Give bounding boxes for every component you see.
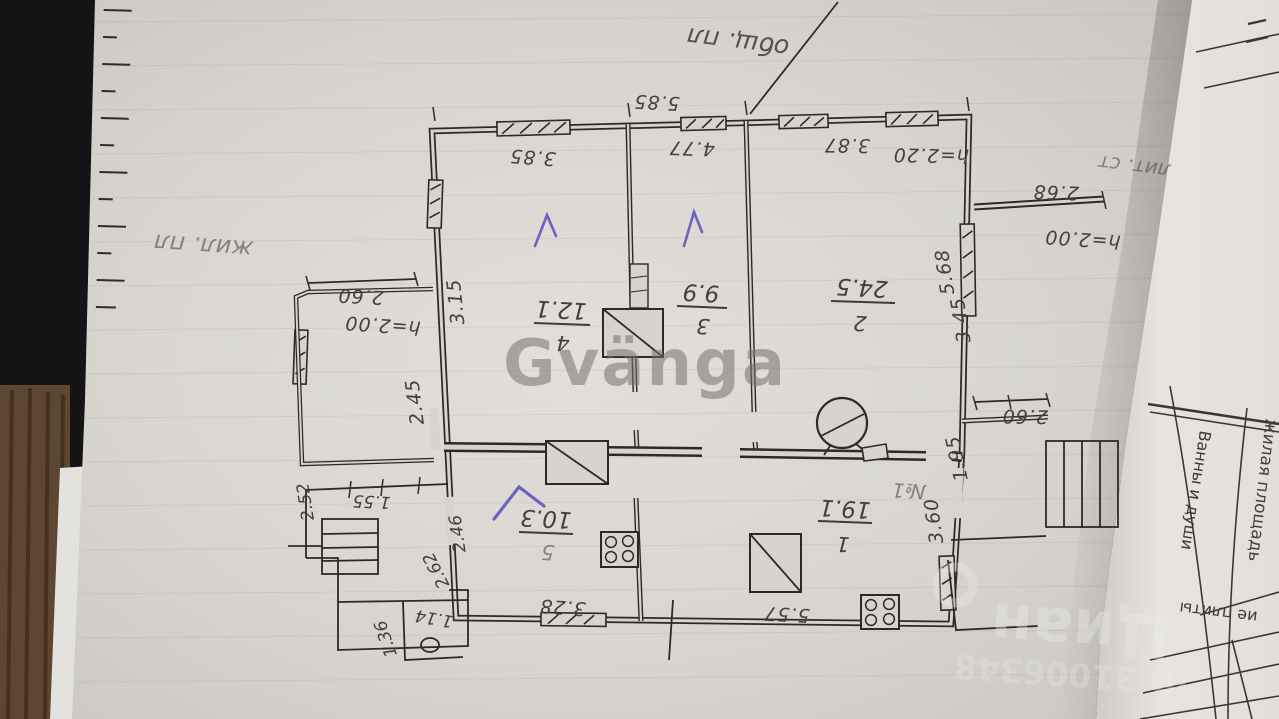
room-number: 5: [541, 540, 556, 565]
room-area: 24.5: [836, 273, 889, 302]
dim-terrace-length: 2.68: [1032, 180, 1079, 204]
window-icon: [427, 180, 443, 228]
dim-room2-height-note: h=2.20: [893, 143, 970, 166]
dim-right-porch-a: 2.60: [1002, 405, 1049, 428]
dim-room1-bottom: 5.57: [763, 602, 810, 626]
window-icon: [886, 111, 938, 126]
flue-icon: [546, 441, 608, 484]
dim-kitchen-window: 3.28: [539, 594, 587, 619]
gas-stove-icon: [601, 532, 638, 567]
room-number: 2: [853, 311, 868, 336]
room-area: 19.1: [819, 494, 872, 523]
gvanga-watermark: Gvänga: [503, 327, 787, 401]
photo-of-floor-plan: жилая площадь Ванны и души ие плиты: [0, 0, 1279, 719]
dim-veranda-width: 2.60: [337, 284, 384, 308]
gas-stove-icon: [861, 595, 899, 629]
dim-room3-width: 4.77: [668, 136, 715, 160]
window-icon: [497, 120, 570, 136]
room-area: 10.3: [520, 504, 573, 533]
dim-porch-b: 1.55: [352, 490, 391, 512]
floor-plan-sheet: жилая площадь Ванны и души ие плиты: [0, 0, 1279, 719]
dim-room2-width: 3.87: [824, 134, 871, 157]
room-number: 1: [836, 532, 851, 557]
dim-top-total: 5.85: [633, 90, 680, 114]
flue-icon: [630, 264, 648, 308]
dim-room4-width: 3.85: [509, 144, 557, 169]
room-area: 9.9: [682, 278, 720, 306]
room-area: 12.1: [535, 295, 588, 324]
window-icon: [681, 116, 726, 130]
flue-icon: [750, 534, 801, 592]
window-icon: [779, 114, 828, 128]
